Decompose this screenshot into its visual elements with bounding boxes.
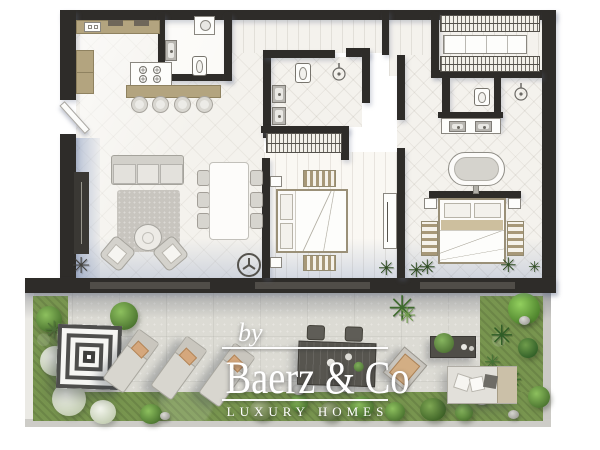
bedroom1-wardrobe (266, 133, 342, 153)
nightstand (270, 257, 282, 268)
dining-chair (250, 213, 263, 229)
freestanding-bathtub (448, 152, 505, 186)
watermark-rule-top (222, 347, 388, 349)
wall-bath1-north (263, 50, 335, 58)
armchair-cushion (106, 244, 127, 265)
wall-divider-upper (397, 55, 405, 120)
rock (160, 412, 170, 420)
wall-divider-lower (397, 148, 405, 278)
wall-wardrobe1-top (261, 126, 349, 133)
utility-toilet (192, 56, 207, 76)
watermark-rule-bottom (222, 399, 388, 401)
rock (508, 410, 519, 419)
striped-rug (421, 221, 438, 256)
table-plant (434, 333, 454, 353)
duvet (295, 191, 346, 251)
sheet (441, 220, 503, 230)
wall-bath1-west (263, 50, 271, 138)
sliding-door-glass (420, 282, 515, 289)
dining-chair (250, 170, 263, 186)
dining-chair (250, 192, 263, 208)
outdoor-sofa (447, 366, 517, 404)
sliding-door-glass (90, 282, 210, 289)
double-vanity (441, 118, 501, 134)
outdoor-chair (307, 325, 326, 341)
tv-sideboard (74, 172, 89, 254)
shower-head-icon (513, 82, 529, 102)
striped-rug (507, 221, 524, 256)
outdoor-chair (345, 326, 364, 342)
rock (519, 316, 530, 325)
wall-wardrobe1-side (341, 126, 349, 160)
bush (518, 338, 538, 358)
sofa-chaise (497, 367, 517, 403)
building-shadow (25, 293, 551, 319)
armchair-cushion (161, 243, 182, 264)
floor-plan: ✳ ✳ ✳ ✳ ✳ ✳ (0, 0, 600, 450)
tableware (469, 346, 474, 351)
plant-icon: ✳ (378, 258, 395, 278)
watermark-by: by (238, 318, 263, 348)
bush (420, 398, 446, 421)
parasol-center (83, 351, 95, 363)
bathroom1-toilet (295, 63, 311, 83)
closet-island (443, 35, 527, 54)
tableware (461, 344, 467, 350)
master-toilet (474, 88, 490, 106)
pillow (444, 203, 471, 218)
sofa-cushion (483, 374, 498, 389)
palm-plant-icon: ✳ (490, 322, 513, 350)
watermark-tagline: LUXURY HOMES (208, 404, 402, 420)
kitchen-island (130, 62, 172, 87)
wall-left-upper (60, 10, 76, 100)
sofa-cushion (137, 164, 159, 184)
striped-bench (303, 170, 336, 187)
plant-icon: ✳ (528, 260, 541, 275)
bar-stool (131, 96, 148, 113)
plant-icon: ✳ (419, 257, 436, 277)
bush (140, 404, 162, 424)
plant-icon: ✳ (72, 256, 90, 278)
kitchen-tall-cabinets (76, 50, 94, 94)
closet-hanging-rail (440, 15, 540, 32)
vanity-sink (449, 121, 466, 132)
kitchen-appliance (134, 20, 149, 26)
pillow (280, 194, 293, 220)
nightstand (270, 176, 282, 187)
stove-burners-icon (131, 63, 171, 86)
wall-closet-west (431, 13, 439, 76)
pillow (474, 203, 501, 218)
striped-bench (303, 255, 336, 271)
outdoor-coffee-table (430, 336, 476, 358)
ceiling-fan-icon (236, 252, 262, 278)
washing-machine (194, 16, 215, 35)
nightstand (424, 198, 437, 209)
shower-head-icon (331, 62, 347, 82)
closet-hanging-rail (440, 56, 540, 72)
nightstand (508, 198, 521, 209)
pillow (280, 223, 293, 249)
wall-hall-left (224, 13, 232, 81)
watermark-brand: Baerz & Co (225, 351, 384, 405)
dining-table (209, 162, 249, 240)
wall-bedroom1-west (262, 158, 270, 278)
tv-console (383, 193, 397, 249)
sofa-cushion (160, 164, 183, 184)
plant-icon: ✳ (398, 306, 416, 328)
bar-stool (174, 96, 191, 113)
bath-faucet (473, 185, 479, 194)
sofa (111, 155, 184, 185)
bar-stool (152, 96, 169, 113)
bed1 (276, 189, 348, 253)
bed2 (438, 198, 506, 264)
sofa-cushion (113, 164, 136, 184)
bush (528, 386, 550, 408)
wall-bath1-east (362, 50, 370, 103)
wall-right (542, 10, 556, 293)
bush (455, 404, 473, 421)
flowering-shrub (90, 400, 116, 424)
duvet (440, 230, 504, 262)
utility-washbasin (165, 40, 177, 61)
vanity-sink (475, 121, 492, 132)
kitchen-sink (84, 22, 101, 32)
plant-icon: ✳ (500, 255, 517, 275)
bar-stool (196, 96, 213, 113)
sliding-door-glass (255, 282, 370, 289)
bathroom1-washbasin (272, 85, 286, 103)
kitchen-appliance (108, 20, 123, 26)
wall-stub-top (382, 10, 389, 55)
bathroom1-washbasin (272, 107, 286, 125)
